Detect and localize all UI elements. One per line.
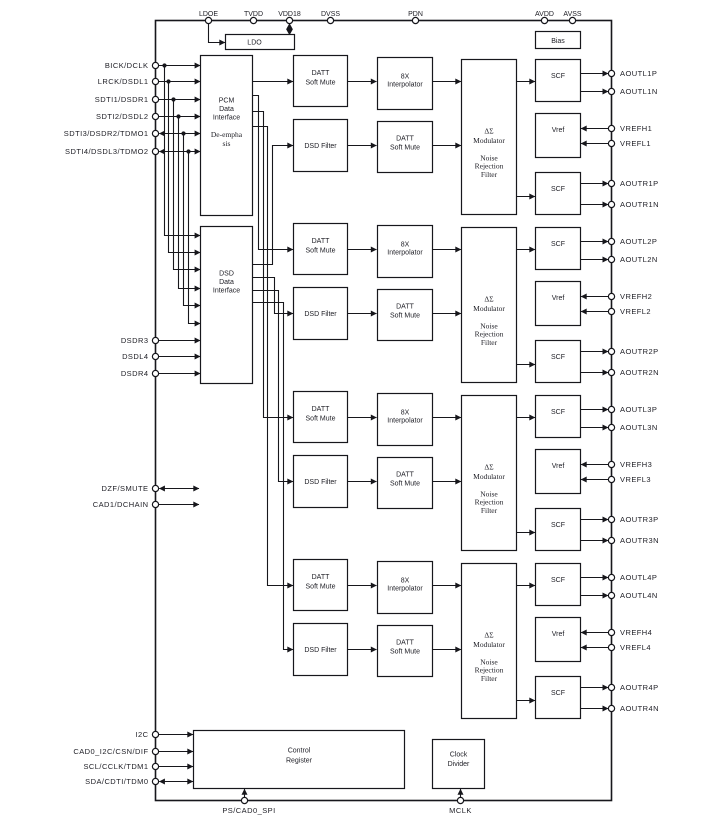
svg-text:DSDR3: DSDR3 (121, 336, 149, 345)
svg-text:VREFL3: VREFL3 (620, 475, 651, 484)
svg-text:PDN: PDN (408, 11, 423, 18)
svg-text:SDTI1/DSDR1: SDTI1/DSDR1 (95, 95, 149, 104)
svg-text:Soft Mute: Soft Mute (390, 481, 420, 488)
svg-text:SDTI2/DSDL2: SDTI2/DSDL2 (96, 112, 148, 121)
svg-text:Interpolator: Interpolator (387, 81, 423, 88)
svg-text:VREFH4: VREFH4 (620, 628, 652, 637)
svg-text:VREFH1: VREFH1 (620, 124, 652, 133)
svg-text:AVSS: AVSS (563, 11, 581, 18)
svg-text:SCF: SCF (551, 577, 565, 584)
svg-text:Vref: Vref (552, 295, 565, 302)
svg-text:SCF: SCF (551, 186, 565, 193)
svg-text:Vref: Vref (552, 127, 565, 134)
svg-text:Filter: Filter (481, 506, 498, 515)
svg-text:Filter: Filter (481, 170, 498, 179)
svg-text:VREFH2: VREFH2 (620, 292, 652, 301)
svg-text:AOUTL4P: AOUTL4P (620, 573, 657, 582)
svg-text:Rejection: Rejection (475, 497, 504, 506)
svg-text:ΔΣ: ΔΣ (484, 463, 493, 472)
svg-text:DATT: DATT (396, 640, 414, 647)
svg-text:SCL/CCLK/TDM1: SCL/CCLK/TDM1 (83, 762, 148, 771)
svg-text:BICK/DCLK: BICK/DCLK (105, 61, 149, 70)
svg-text:Vref: Vref (552, 463, 565, 470)
svg-text:Control: Control (288, 748, 311, 755)
svg-text:Modulator: Modulator (473, 136, 505, 145)
svg-text:PCM: PCM (219, 97, 235, 104)
svg-text:AOUTR1P: AOUTR1P (620, 179, 659, 188)
svg-text:DSD Filter: DSD Filter (304, 479, 337, 486)
svg-text:AOUTR3N: AOUTR3N (620, 536, 659, 545)
svg-text:Data: Data (219, 279, 234, 286)
svg-text:Modulator: Modulator (473, 304, 505, 313)
svg-text:DATT: DATT (396, 136, 414, 143)
svg-text:SDTI3/DSDR2/TDMO1: SDTI3/DSDR2/TDMO1 (64, 129, 149, 138)
svg-text:Soft Mute: Soft Mute (390, 145, 420, 152)
svg-text:Bias: Bias (551, 38, 565, 45)
svg-text:AOUTR1N: AOUTR1N (620, 200, 659, 209)
svg-text:ΔΣ: ΔΣ (484, 127, 493, 136)
svg-text:Rejection: Rejection (475, 161, 504, 170)
svg-text:DATT: DATT (312, 574, 330, 581)
svg-text:LDOE: LDOE (199, 11, 218, 18)
svg-text:AOUTL2N: AOUTL2N (620, 255, 658, 264)
svg-text:AOUTR2P: AOUTR2P (620, 347, 659, 356)
svg-text:LRCK/DSDL1: LRCK/DSDL1 (98, 77, 149, 86)
svg-text:Rejection: Rejection (475, 665, 504, 674)
svg-text:SCF: SCF (551, 409, 565, 416)
svg-text:sis: sis (223, 139, 231, 148)
svg-text:DATT: DATT (396, 472, 414, 479)
svg-text:DSDR4: DSDR4 (121, 369, 149, 378)
svg-text:AOUTR4P: AOUTR4P (620, 683, 659, 692)
svg-text:PS/CAD0_SPI: PS/CAD0_SPI (222, 806, 275, 815)
svg-text:AOUTL2P: AOUTL2P (620, 237, 657, 246)
svg-text:DSDL4: DSDL4 (122, 352, 148, 361)
svg-text:AOUTR2N: AOUTR2N (620, 368, 659, 377)
svg-text:Soft Mute: Soft Mute (306, 416, 336, 423)
svg-text:Vref: Vref (552, 631, 565, 638)
svg-text:SCF: SCF (551, 241, 565, 248)
svg-text:Soft Mute: Soft Mute (306, 584, 336, 591)
svg-text:Clock: Clock (450, 752, 468, 759)
svg-text:Rejection: Rejection (475, 329, 504, 338)
svg-text:SCF: SCF (551, 522, 565, 529)
svg-text:AOUTL3P: AOUTL3P (620, 405, 657, 414)
svg-text:AVDD: AVDD (535, 11, 554, 18)
svg-text:Soft Mute: Soft Mute (390, 313, 420, 320)
svg-text:Soft Mute: Soft Mute (306, 80, 336, 87)
svg-text:Register: Register (286, 758, 313, 765)
svg-text:8X: 8X (401, 409, 410, 416)
svg-text:Soft Mute: Soft Mute (306, 248, 336, 255)
svg-text:SCF: SCF (551, 354, 565, 361)
svg-text:ΔΣ: ΔΣ (484, 631, 493, 640)
svg-text:DATT: DATT (396, 304, 414, 311)
svg-text:AOUTR3P: AOUTR3P (620, 515, 659, 524)
svg-text:CAD0_I2C/CSN/DIF: CAD0_I2C/CSN/DIF (73, 747, 148, 756)
svg-text:I2C: I2C (135, 730, 148, 739)
svg-text:De-empha: De-empha (211, 130, 243, 139)
svg-text:Divider: Divider (448, 761, 470, 768)
svg-text:AOUTL1N: AOUTL1N (620, 87, 658, 96)
svg-text:MCLK: MCLK (449, 806, 472, 815)
svg-text:AOUTL3N: AOUTL3N (620, 423, 658, 432)
svg-text:CAD1/DCHAIN: CAD1/DCHAIN (93, 500, 149, 509)
svg-text:8X: 8X (401, 241, 410, 248)
svg-text:Filter: Filter (481, 674, 498, 683)
svg-text:SDA/CDTI/TDM0: SDA/CDTI/TDM0 (85, 777, 148, 786)
svg-text:VREFH3: VREFH3 (620, 460, 652, 469)
svg-text:VREFL2: VREFL2 (620, 307, 651, 316)
svg-text:Interpolator: Interpolator (387, 585, 423, 592)
svg-text:Interpolator: Interpolator (387, 417, 423, 424)
svg-text:VREFL4: VREFL4 (620, 643, 651, 652)
svg-text:SDTI4/DSDL3/TDMO2: SDTI4/DSDL3/TDMO2 (65, 147, 149, 156)
svg-text:AOUTL4N: AOUTL4N (620, 591, 658, 600)
svg-text:Modulator: Modulator (473, 640, 505, 649)
svg-text:AOUTL1P: AOUTL1P (620, 69, 657, 78)
svg-text:Interface: Interface (213, 288, 240, 295)
svg-text:VREFL1: VREFL1 (620, 139, 651, 148)
svg-text:DATT: DATT (312, 406, 330, 413)
svg-text:DZF/SMUTE: DZF/SMUTE (102, 484, 149, 493)
svg-text:DSD: DSD (219, 271, 234, 278)
svg-text:VDD18: VDD18 (278, 11, 301, 18)
svg-text:DSD Filter: DSD Filter (304, 647, 337, 654)
svg-text:Modulator: Modulator (473, 472, 505, 481)
svg-text:TVDD: TVDD (244, 11, 263, 18)
svg-text:DATT: DATT (312, 70, 330, 77)
svg-text:Interpolator: Interpolator (387, 249, 423, 256)
svg-text:DVSS: DVSS (321, 11, 340, 18)
svg-text:ΔΣ: ΔΣ (484, 295, 493, 304)
svg-text:SCF: SCF (551, 690, 565, 697)
svg-text:Data: Data (219, 106, 234, 113)
svg-text:8X: 8X (401, 577, 410, 584)
svg-text:DSD Filter: DSD Filter (304, 311, 337, 318)
svg-text:DSD Filter: DSD Filter (304, 143, 337, 150)
svg-text:DATT: DATT (312, 238, 330, 245)
svg-text:Interface: Interface (213, 114, 240, 121)
svg-text:LDO: LDO (247, 40, 262, 47)
svg-text:Filter: Filter (481, 338, 498, 347)
svg-text:SCF: SCF (551, 73, 565, 80)
svg-text:8X: 8X (401, 73, 410, 80)
svg-text:Soft Mute: Soft Mute (390, 649, 420, 656)
svg-text:AOUTR4N: AOUTR4N (620, 704, 659, 713)
